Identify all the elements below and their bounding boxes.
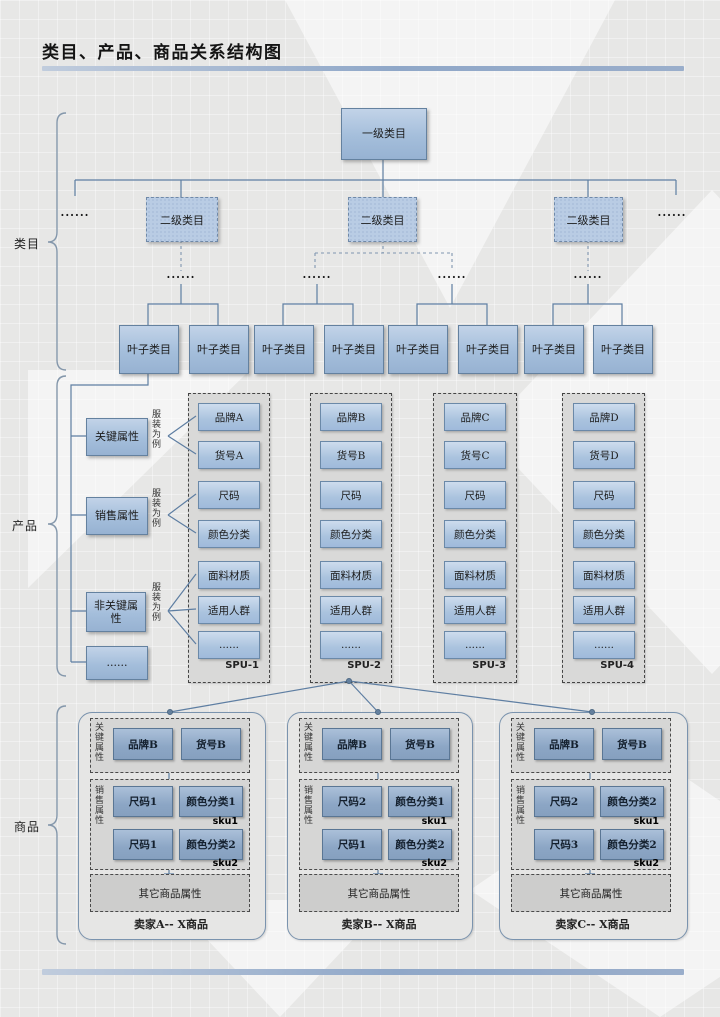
spu-item-node: 货号D	[573, 441, 635, 469]
section-label-commodity: 商品	[14, 818, 40, 835]
section-label-category: 类目	[14, 235, 40, 252]
level2-category-node: 二级类目	[146, 197, 218, 242]
diagram-page: 类目、产品、商品关系结构图 类目 产品 商品 一级类目 二级类目 二级类目 二级…	[0, 0, 720, 1017]
spu-item-node: 品牌C	[444, 403, 506, 431]
seller-itemno-node: 货号B	[181, 728, 241, 760]
seller-itemno-node: 货号B	[390, 728, 450, 760]
footer-rule	[42, 969, 684, 975]
leaf-category-node: 叶子类目	[593, 325, 653, 374]
seller-sales-group-label: 销售属性	[93, 785, 102, 841]
sku-color-node: 颜色分类2	[600, 786, 664, 817]
seller-brand-node: 品牌B	[113, 728, 173, 760]
spu-item-node: 适用人群	[198, 596, 260, 624]
sku-size-node: 尺码1	[113, 786, 173, 817]
sku-tag: sku1	[387, 816, 447, 827]
leaf-category-node: 叶子类目	[458, 325, 518, 374]
leaf-category-node: 叶子类目	[524, 325, 584, 374]
spu-footer: SPU-4	[562, 660, 634, 671]
spu-item-node: 品牌B	[320, 403, 382, 431]
attr-note-vertical: 服装为例	[150, 582, 159, 640]
spu-item-node: 颜色分类	[320, 520, 382, 548]
branch-ellipsis: ......	[159, 269, 203, 280]
sku-size-node: 尺码1	[322, 829, 382, 860]
spu-item-node: ......	[320, 631, 382, 659]
seller-other-attrs: 其它商品属性	[299, 874, 459, 912]
ellipsis-left: ......	[53, 207, 97, 218]
spu-item-node: 颜色分类	[444, 520, 506, 548]
seller-brand-node: 品牌B	[322, 728, 382, 760]
sku-color-node: 颜色分类2	[388, 829, 452, 860]
title-underline	[42, 66, 684, 71]
ellipsis-right: ......	[650, 207, 694, 218]
sku-size-node: 尺码2	[534, 786, 594, 817]
sku-size-node: 尺码1	[113, 829, 173, 860]
level2-category-node: 二级类目	[554, 197, 623, 242]
seller-footer: 卖家A-- X商品	[78, 916, 264, 932]
spu-item-node: 品牌A	[198, 403, 260, 431]
spu-item-node: 面料材质	[198, 561, 260, 589]
leaf-category-node: 叶子类目	[324, 325, 384, 374]
attr-node-ellipsis: ......	[86, 646, 148, 680]
spu-item-node: ......	[198, 631, 260, 659]
leaf-category-node: 叶子类目	[119, 325, 179, 374]
spu-item-node: 尺码	[444, 481, 506, 509]
branch-ellipsis: ......	[295, 269, 339, 280]
leaf-category-node: 叶子类目	[388, 325, 448, 374]
spu-footer: SPU-2	[310, 660, 381, 671]
sku-tag: sku2	[387, 858, 447, 869]
page-title: 类目、产品、商品关系结构图	[42, 38, 283, 63]
spu-item-node: 适用人群	[444, 596, 506, 624]
spu-item-node: 尺码	[198, 481, 260, 509]
seller-key-group-label: 关键属性	[514, 722, 523, 768]
sku-size-node: 尺码3	[534, 829, 594, 860]
seller-other-attrs: 其它商品属性	[90, 874, 250, 912]
seller-itemno-node: 货号B	[602, 728, 662, 760]
leaf-category-node: 叶子类目	[189, 325, 249, 374]
spu-item-node: 货号C	[444, 441, 506, 469]
seller-key-group-label: 关键属性	[302, 722, 311, 768]
spu-item-node: 面料材质	[573, 561, 635, 589]
level2-category-node: 二级类目	[348, 197, 417, 242]
attr-note-vertical: 服装为例	[150, 488, 159, 544]
spu-footer: SPU-1	[188, 660, 259, 671]
seller-sales-group-label: 销售属性	[302, 785, 311, 841]
attr-node-key: 关键属性	[86, 418, 148, 456]
sku-tag: sku1	[178, 816, 238, 827]
spu-item-node: 品牌D	[573, 403, 635, 431]
sku-color-node: 颜色分类2	[600, 829, 664, 860]
spu-item-node: 适用人群	[573, 596, 635, 624]
sku-tag: sku1	[599, 816, 659, 827]
spu-item-node: 面料材质	[444, 561, 506, 589]
leaf-category-node: 叶子类目	[254, 325, 314, 374]
seller-footer: 卖家C-- X商品	[499, 916, 686, 932]
attr-node-nonkey: 非关键属性	[86, 592, 146, 632]
spu-footer: SPU-3	[433, 660, 506, 671]
attr-note-vertical: 服装为例	[150, 409, 159, 465]
spu-item-node: 尺码	[320, 481, 382, 509]
branch-ellipsis: ......	[566, 269, 610, 280]
section-label-product: 产品	[12, 517, 38, 534]
spu-item-node: 颜色分类	[573, 520, 635, 548]
spu-item-node: 面料材质	[320, 561, 382, 589]
spu-item-node: 适用人群	[320, 596, 382, 624]
sku-tag: sku2	[599, 858, 659, 869]
seller-other-attrs: 其它商品属性	[511, 874, 671, 912]
spu-item-node: ......	[444, 631, 506, 659]
sku-size-node: 尺码2	[322, 786, 382, 817]
spu-item-node: 货号A	[198, 441, 260, 469]
sku-tag: sku2	[178, 858, 238, 869]
seller-sales-group-label: 销售属性	[514, 785, 523, 841]
sku-color-node: 颜色分类1	[179, 786, 243, 817]
branch-ellipsis: ......	[430, 269, 474, 280]
spu-item-node: ......	[573, 631, 635, 659]
seller-footer: 卖家B-- X商品	[287, 916, 471, 932]
sku-color-node: 颜色分类1	[388, 786, 452, 817]
attr-node-sales: 销售属性	[86, 497, 148, 535]
root-category-node: 一级类目	[341, 108, 427, 160]
spu-item-node: 尺码	[573, 481, 635, 509]
seller-key-group-label: 关键属性	[93, 722, 102, 768]
spu-item-node: 颜色分类	[198, 520, 260, 548]
spu-item-node: 货号B	[320, 441, 382, 469]
sku-color-node: 颜色分类2	[179, 829, 243, 860]
seller-brand-node: 品牌B	[534, 728, 594, 760]
